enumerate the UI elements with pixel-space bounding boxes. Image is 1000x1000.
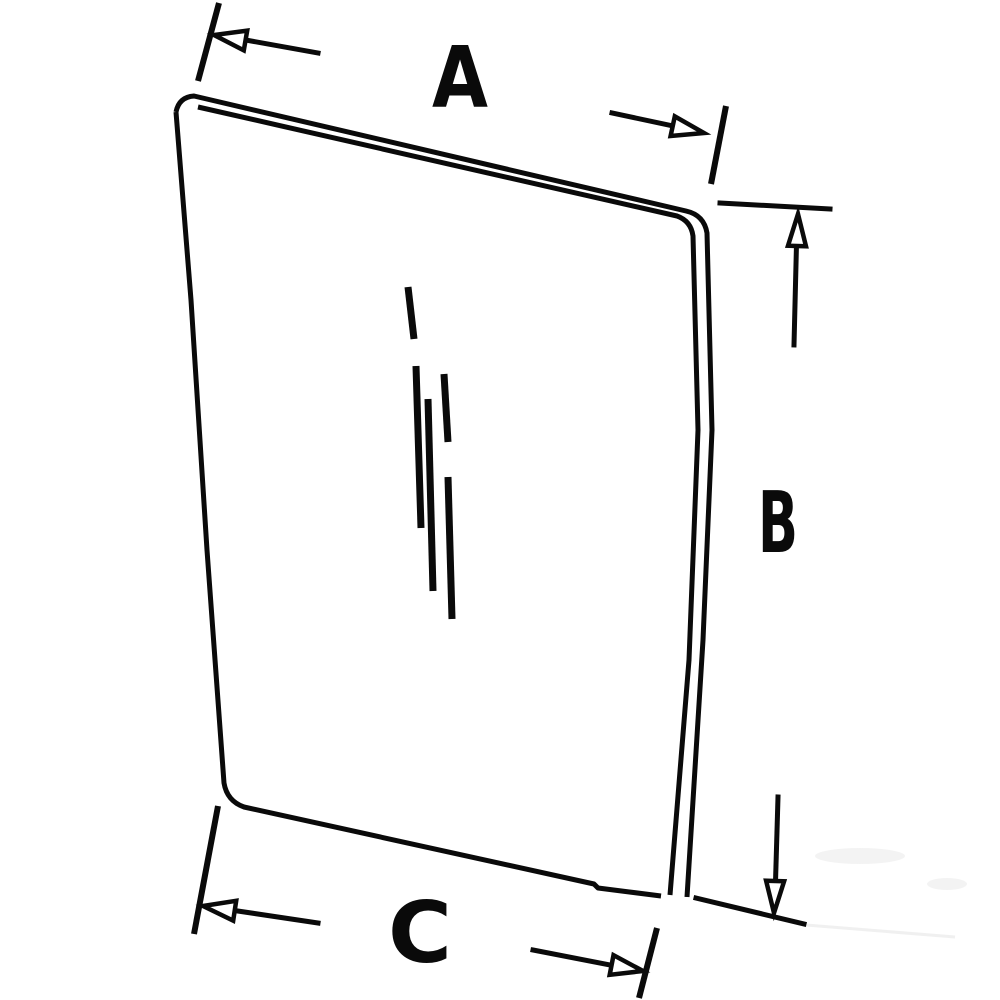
- scan-smudge-1: [815, 848, 905, 864]
- diagram-canvas: A B C: [0, 0, 1000, 1000]
- reflection-stroke-1: [408, 287, 414, 339]
- dimension-c: C: [194, 806, 657, 998]
- dim-a-left-arrowhead-icon: [214, 31, 247, 51]
- glass-reflection-marks: [408, 287, 452, 619]
- dim-c-left-extension-tick: [194, 806, 218, 934]
- dim-a-right-extension-tick: [711, 106, 726, 184]
- reflection-stroke-3: [428, 399, 433, 591]
- reflection-stroke-4: [444, 374, 448, 442]
- dim-c-label: C: [388, 884, 452, 983]
- dim-b-down-arrow-shaft: [776, 797, 779, 882]
- dim-b-label: B: [758, 474, 798, 573]
- scan-streak: [806, 925, 955, 937]
- panel-outline: [176, 96, 712, 897]
- scan-smudge-2: [927, 878, 967, 890]
- dim-b-down-arrowhead-icon: [766, 881, 784, 913]
- dim-c-right-arrowhead-icon: [610, 955, 643, 975]
- dim-c-left-arrow-shaft: [231, 910, 318, 923]
- reflection-stroke-2: [416, 366, 421, 528]
- glass-panel-diagram-svg: A B C: [0, 0, 1000, 1000]
- scan-artifacts: [806, 848, 967, 937]
- dim-a-label: A: [432, 29, 488, 128]
- dim-b-up-arrow-shaft: [794, 244, 797, 345]
- dim-c-right-arrow-shaft: [533, 950, 615, 966]
- dim-b-bottom-reference-line: [696, 898, 804, 924]
- dim-c-right-extension-tick: [639, 928, 657, 998]
- dim-a-right-arrowhead-icon: [671, 116, 704, 136]
- dim-b-up-arrowhead-icon: [788, 214, 806, 246]
- panel-top-right-outer-edge: [176, 96, 712, 897]
- dim-a-left-arrow-shaft: [240, 39, 318, 53]
- dim-c-left-arrowhead-icon: [203, 901, 236, 921]
- reflection-stroke-5: [448, 477, 452, 619]
- dimension-b: B: [696, 203, 830, 924]
- dim-b-top-reference-line: [720, 203, 830, 209]
- dim-a-left-extension-tick: [198, 3, 219, 81]
- dim-a-right-arrow-shaft: [612, 113, 678, 127]
